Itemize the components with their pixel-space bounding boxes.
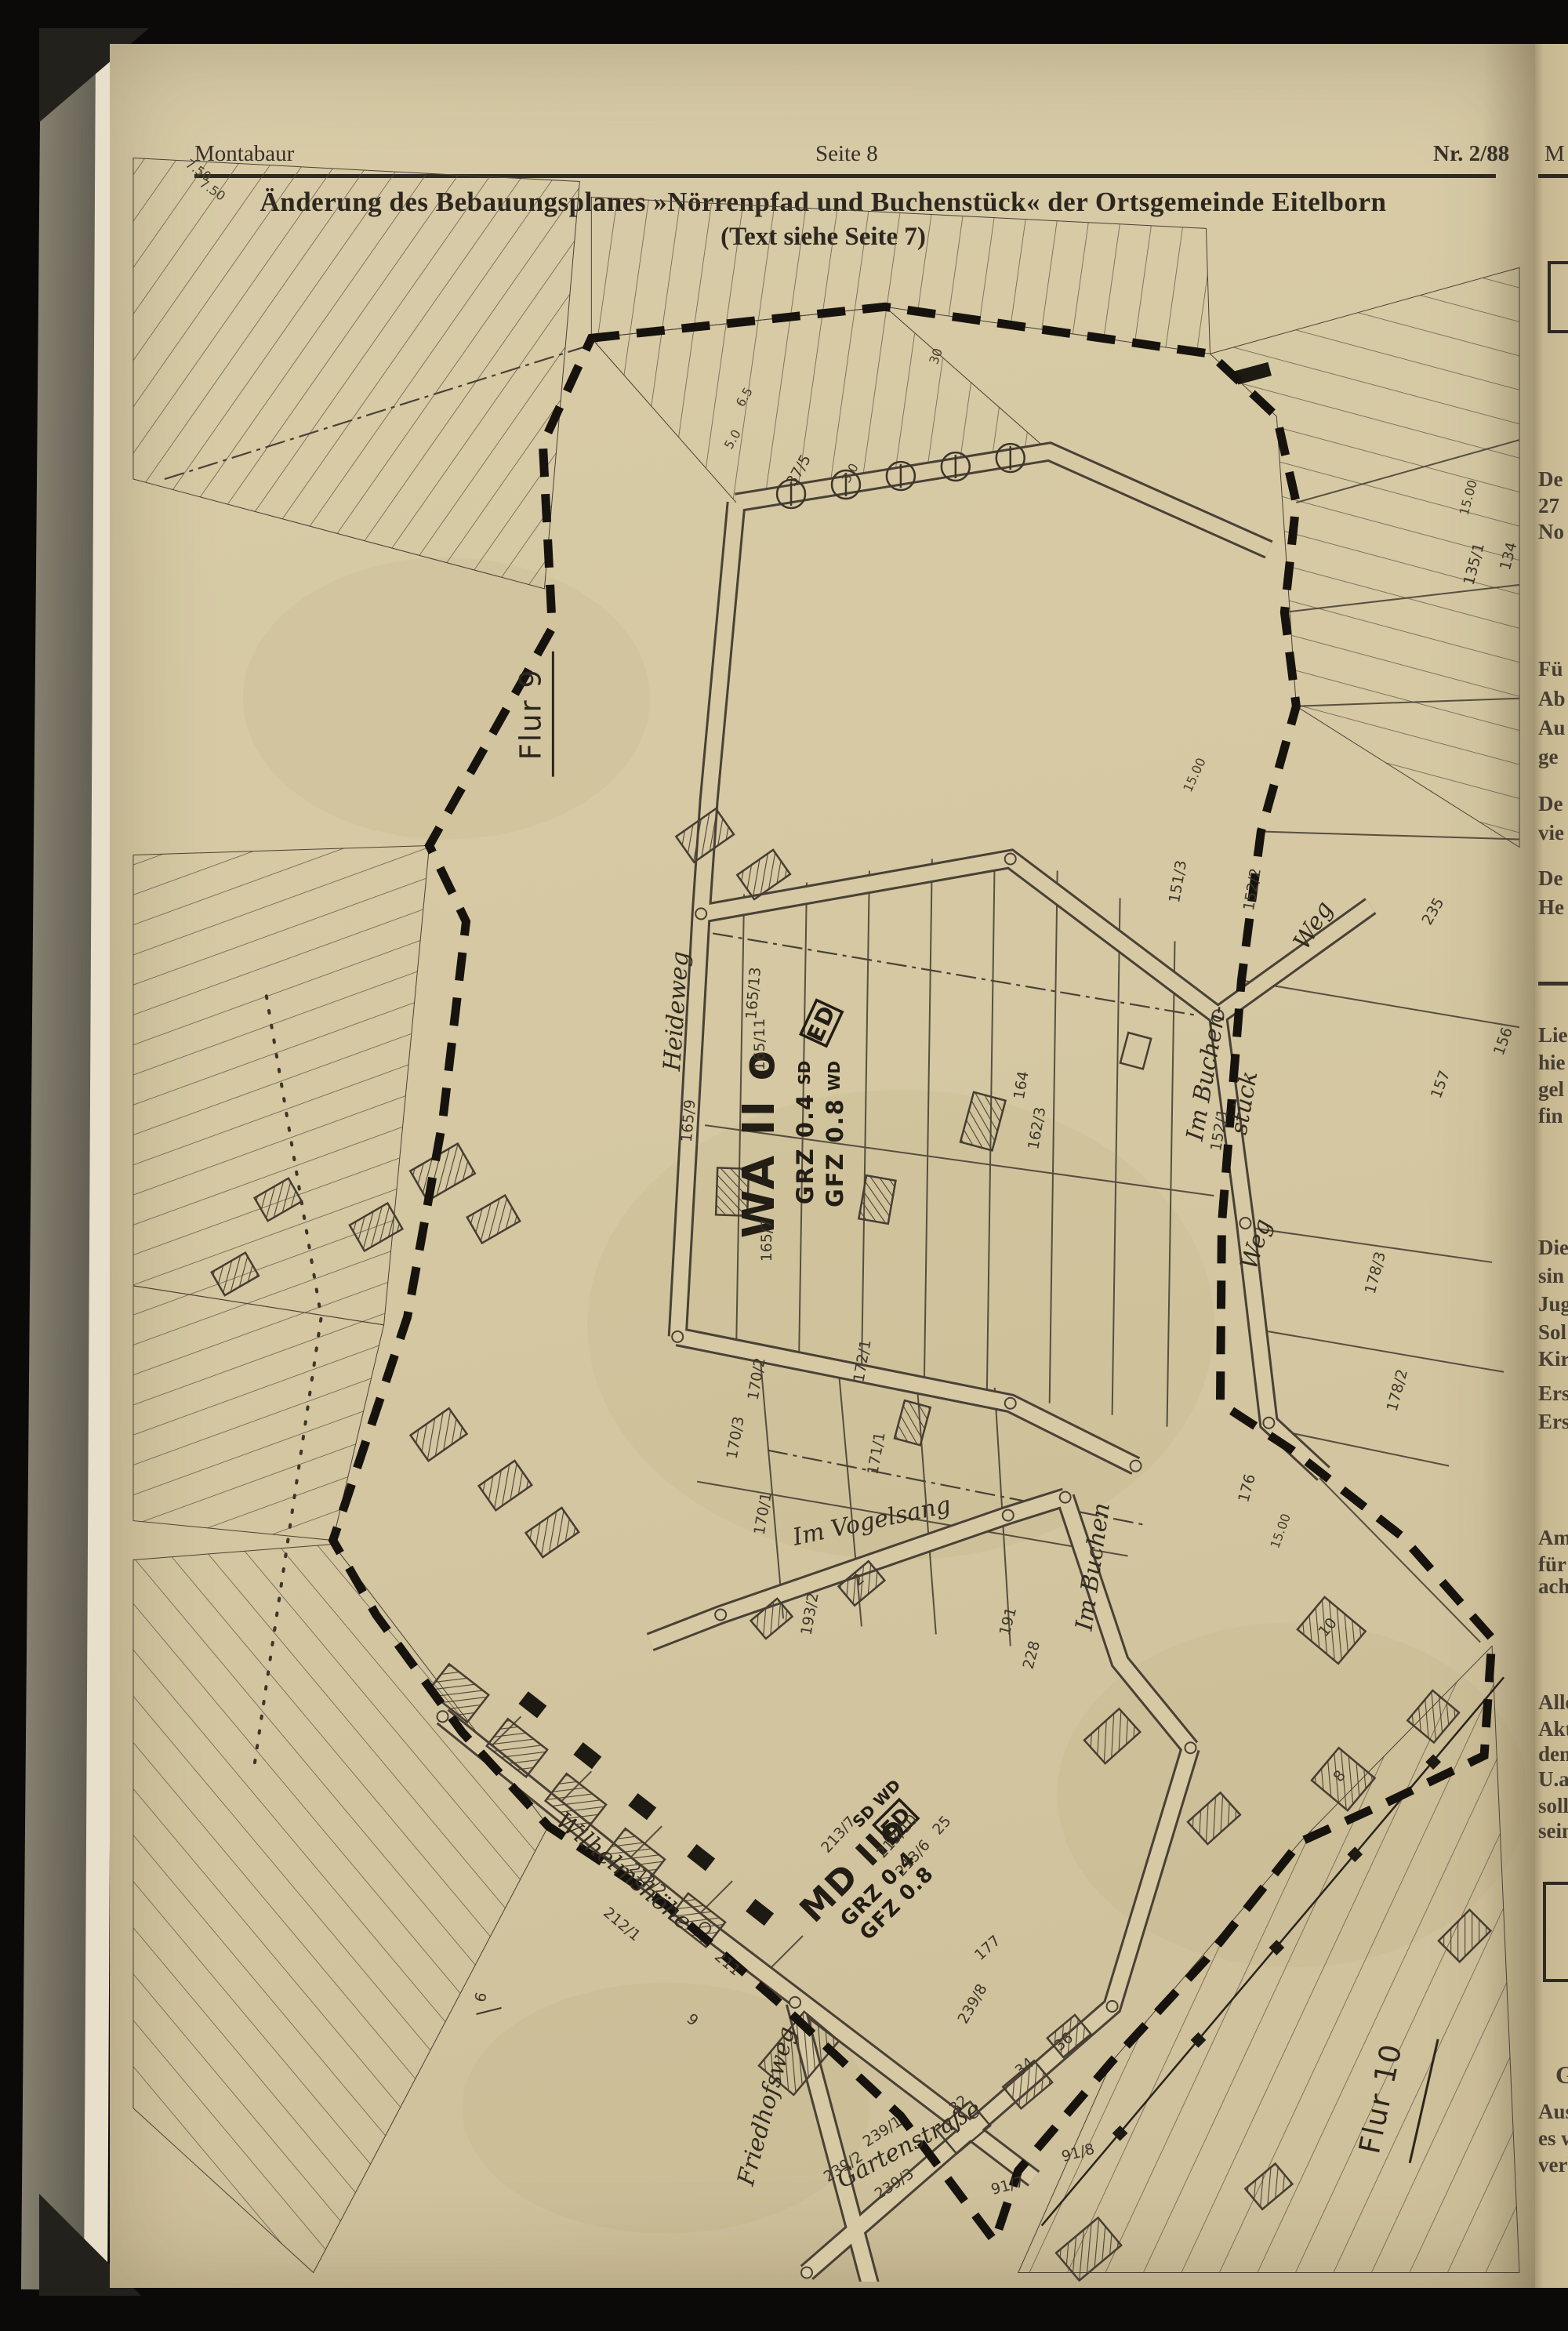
zone-wa-gfz: GFZ 0.8: [822, 1098, 848, 1207]
parcel-label: 165/11: [751, 1018, 768, 1071]
adjacent-box-outline-2: [1543, 1882, 1568, 1982]
parcel-label: 177: [971, 1932, 1004, 1964]
zone-wa-main: WA II o: [734, 1048, 785, 1238]
text-fragment: hie: [1538, 1051, 1566, 1075]
parcel-label: 178/2: [1384, 1367, 1411, 1414]
parcel-label: 25: [929, 1813, 955, 1839]
text-fragment: Alle: [1538, 1690, 1568, 1715]
text-fragment: es w: [1538, 2126, 1568, 2151]
text-fragment: No: [1538, 520, 1564, 544]
text-fragment: ach: [1538, 1574, 1568, 1599]
parcel-label: 157: [1428, 1068, 1454, 1101]
text-fragment: ge: [1538, 745, 1558, 769]
text-fragment: Am: [1538, 1526, 1568, 1550]
text-fragment: Kir: [1538, 1347, 1568, 1371]
adjacent-header-fragment: M: [1544, 141, 1565, 167]
text-fragment: Akt: [1538, 1717, 1568, 1741]
parcel-label: 151/3: [1166, 859, 1190, 905]
text-fragment: verb: [1538, 2153, 1568, 2177]
text-fragment: De: [1538, 467, 1563, 492]
text-fragment: Au: [1538, 716, 1566, 740]
zone-wa-ed: ED: [801, 1000, 841, 1046]
text-fragment: Fü: [1538, 657, 1563, 681]
text-fragment: U.a.: [1538, 1767, 1568, 1792]
parcel-label: 165/13: [742, 967, 764, 1020]
text-fragment: soll: [1538, 1794, 1568, 1818]
flur-9-label: Flur 9: [514, 668, 547, 760]
zone-md-label: MD IIo ED SD WD GRZ 0.4 GFZ 0.8: [779, 1776, 967, 1964]
text-fragment: Jug: [1538, 1292, 1568, 1316]
dimension-label: 15.00: [1180, 756, 1209, 794]
adjacent-box-outline: [1548, 261, 1568, 333]
text-fragment: sin: [1538, 1264, 1564, 1288]
text-fragment: Ers: [1538, 1382, 1568, 1406]
adjacent-section-rule: [1538, 982, 1568, 986]
parcel-label: 191: [996, 1606, 1021, 1638]
parcel-label: 228: [1020, 1639, 1044, 1671]
parcel-label: 6: [471, 1991, 490, 2004]
zone-wa-gfz-suffix: WD: [825, 1061, 844, 1091]
parcel-label: 152/2: [1240, 867, 1265, 913]
parcel-label: 239/8: [954, 1981, 990, 2027]
text-fragment: Sol: [1538, 1320, 1566, 1345]
zone-wa-grz-suffix: SD: [795, 1061, 814, 1085]
bebauungsplan-map: Flur 9 Flur 10 WA II o GRZ 0.4 SD GFZ 0.…: [118, 149, 1535, 2282]
parcel-label: 176: [1235, 1472, 1259, 1505]
text-fragment: G: [1555, 2061, 1568, 2090]
text-fragment: Ers: [1538, 1410, 1568, 1434]
text-fragment: fin: [1538, 1104, 1563, 1128]
text-fragment: Lie: [1538, 1023, 1568, 1047]
text-fragment: He: [1538, 895, 1564, 920]
text-fragment: Ab: [1538, 687, 1566, 711]
parcel-label: 212/1: [600, 1904, 644, 1944]
text-fragment: sein: [1538, 1819, 1568, 1843]
adjacent-header-rule: [1538, 174, 1568, 178]
text-fragment: gel: [1538, 1077, 1564, 1102]
text-fragment: 27: [1538, 494, 1559, 518]
text-fragment: den: [1538, 1742, 1568, 1766]
parcel-label: 91/7: [989, 2173, 1026, 2198]
text-fragment: für: [1538, 1552, 1566, 1577]
parcel-label: 235: [1418, 895, 1447, 928]
text-fragment: Die: [1538, 1236, 1568, 1260]
text-fragment: De: [1538, 792, 1563, 816]
parcel-label: 164: [1011, 1069, 1033, 1100]
parcel-label: 193/2: [798, 1592, 822, 1637]
parcel-label: 156: [1490, 1025, 1516, 1058]
text-fragment: De: [1538, 866, 1563, 891]
zone-wa-grz: GRZ 0.4: [792, 1093, 818, 1204]
text-fragment: Aus: [1538, 2100, 1568, 2124]
text-fragment: vie: [1538, 821, 1564, 845]
parcel-label: 178/3: [1362, 1250, 1389, 1296]
parcel-label: 165/7: [758, 1219, 775, 1262]
dimension-label: 15.00: [1267, 1512, 1293, 1550]
